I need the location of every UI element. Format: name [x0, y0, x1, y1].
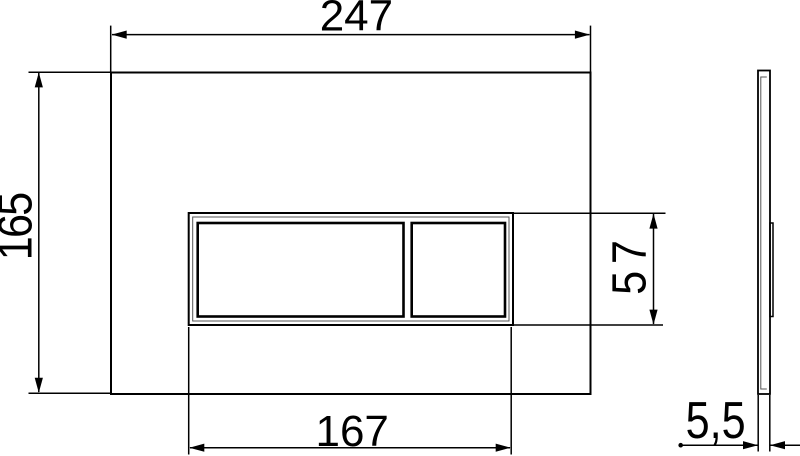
svg-text:167: 167	[315, 407, 388, 456]
svg-text:165: 165	[0, 192, 42, 260]
svg-text:5,5: 5,5	[686, 392, 746, 450]
svg-text:247: 247	[320, 0, 393, 40]
